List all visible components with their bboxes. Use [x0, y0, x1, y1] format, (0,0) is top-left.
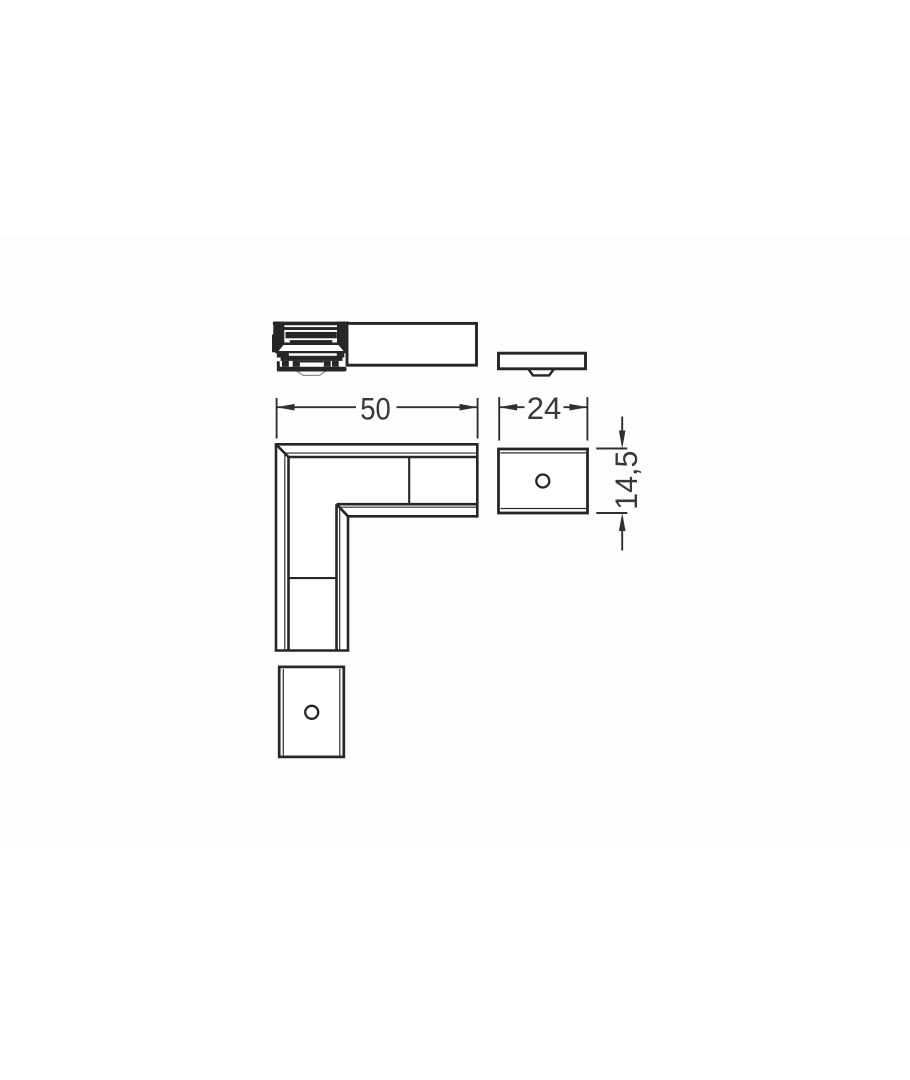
svg-text:50: 50 [360, 391, 391, 427]
svg-text:24: 24 [527, 390, 562, 426]
svg-text:14,5: 14,5 [608, 451, 644, 510]
